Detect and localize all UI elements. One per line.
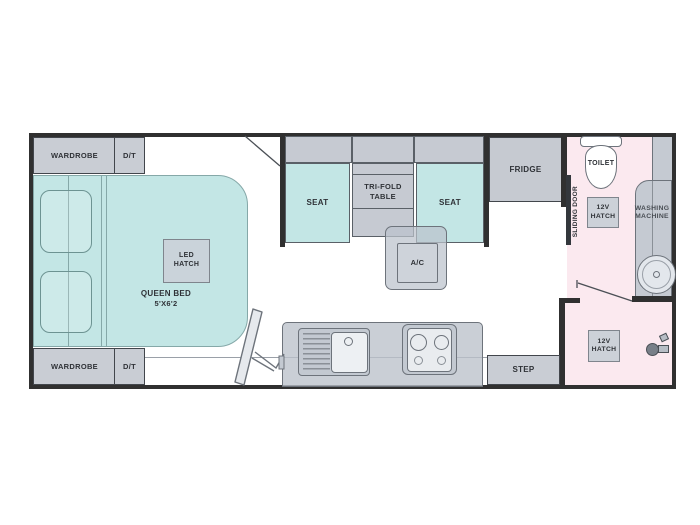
seat-left: SEAT <box>285 163 350 243</box>
led-hatch-label: LED <box>179 252 194 261</box>
fridge: FRIDGE <box>489 137 562 202</box>
caravan-floor-plan: LED HATCH QUEEN BED 5'X6'2 WARDROBE D/T … <box>0 0 700 525</box>
bathroom-divider-wall <box>632 296 672 302</box>
bed-fold-line <box>106 176 107 346</box>
dinette-backrest-right <box>414 136 484 163</box>
hatch-12v-bathroom: 12V HATCH <box>587 197 619 228</box>
entry-step: STEP <box>487 355 560 385</box>
pillow <box>40 271 92 333</box>
table-fold-line <box>353 208 413 209</box>
toilet-label: TOILET <box>579 159 623 169</box>
washing-machine-door-hub <box>653 271 660 278</box>
hatch-12v-shower: 12V HATCH <box>588 330 620 362</box>
dressing-table-bottom: D/T <box>114 348 145 385</box>
led-hatch: LED HATCH <box>163 239 210 283</box>
pillow <box>40 190 92 253</box>
bed-fold-line <box>101 176 102 346</box>
table-label: TABLE <box>370 192 396 201</box>
burner <box>437 356 446 365</box>
burner <box>410 334 427 351</box>
dinette-backrest-mid <box>352 136 414 163</box>
burner <box>434 335 449 350</box>
ac-unit-inner: A/C <box>397 243 438 283</box>
burner <box>414 356 423 365</box>
shower-bracket-icon <box>658 345 669 353</box>
sink-drainer <box>303 333 330 373</box>
dinette-wall-left <box>280 135 285 247</box>
sink-drain-hole <box>344 337 353 346</box>
wardrobe-top: WARDROBE <box>33 137 116 174</box>
queen-bed-label: QUEEN BED 5'X6'2 <box>110 288 222 310</box>
led-hatch-label: HATCH <box>174 261 199 270</box>
table-label: TRI-FOLD <box>364 182 401 191</box>
washing-machine-label: WASHING MACHINE <box>628 204 676 222</box>
ac-label: A/C <box>411 258 425 267</box>
dinette-backrest-left <box>285 136 352 163</box>
wardrobe-bottom: WARDROBE <box>33 348 116 385</box>
washing-machine-top <box>652 137 672 181</box>
sliding-door-label: SLIDING DOOR <box>570 179 583 245</box>
dressing-table-top: D/T <box>114 137 145 174</box>
ac-unit: A/C <box>385 226 447 290</box>
